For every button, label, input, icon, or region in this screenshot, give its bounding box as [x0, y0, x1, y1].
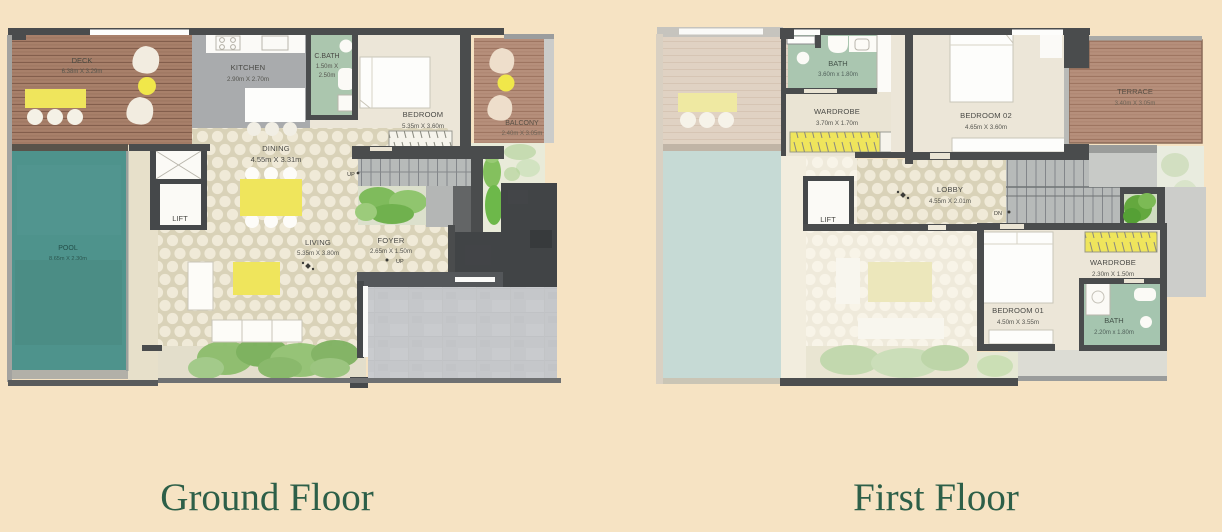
svg-text:UP: UP [347, 172, 355, 178]
svg-text:Ground Floor: Ground Floor [160, 476, 373, 519]
svg-text:4.50m X 3.55m: 4.50m X 3.55m [997, 319, 1039, 326]
svg-text:5.35m X 3.80m: 5.35m X 3.80m [297, 250, 339, 257]
svg-text:BEDROOM 02: BEDROOM 02 [960, 111, 1012, 120]
svg-text:DECK: DECK [72, 56, 93, 65]
svg-text:8.65m X 2.30m: 8.65m X 2.30m [49, 256, 87, 262]
svg-text:KITCHEN: KITCHEN [231, 63, 266, 72]
svg-text:DINING: DINING [262, 144, 290, 153]
svg-text:2.50m: 2.50m [319, 73, 336, 79]
svg-text:TERRACE: TERRACE [1117, 87, 1153, 96]
svg-text:LOBBY: LOBBY [937, 185, 963, 194]
svg-text:DN: DN [994, 211, 1002, 217]
svg-text:WARDROBE: WARDROBE [814, 107, 860, 116]
svg-text:4.55m X 2.01m: 4.55m X 2.01m [929, 198, 971, 205]
svg-text:LIFT: LIFT [172, 214, 188, 223]
svg-text:BATH: BATH [828, 59, 847, 68]
svg-text:BEDROOM 01: BEDROOM 01 [992, 306, 1044, 315]
svg-text:BATH: BATH [1104, 316, 1123, 325]
svg-text:3.60m x 1.80m: 3.60m x 1.80m [818, 72, 858, 78]
svg-text:BEDROOM: BEDROOM [403, 110, 444, 119]
svg-text:BALCONY: BALCONY [505, 120, 539, 127]
svg-text:3.40m X 3.05m: 3.40m X 3.05m [1115, 101, 1156, 107]
svg-text:5.35m X 3.60m: 5.35m X 3.60m [402, 123, 444, 130]
svg-text:4.55m X 3.31m: 4.55m X 3.31m [251, 155, 302, 164]
svg-text:1.50m X: 1.50m X [316, 64, 338, 70]
svg-text:2.65m X 1.50m: 2.65m X 1.50m [370, 248, 412, 255]
svg-text:3.70m X 1.70m: 3.70m X 1.70m [816, 120, 858, 127]
svg-text:WARDROBE: WARDROBE [1090, 258, 1136, 267]
svg-text:LIFT: LIFT [820, 215, 836, 224]
svg-text:FOYER: FOYER [377, 236, 404, 245]
svg-text:UP: UP [396, 259, 404, 265]
svg-text:6.38m X 3.29m: 6.38m X 3.29m [62, 69, 103, 75]
svg-text:2.20m x 1.80m: 2.20m x 1.80m [1094, 330, 1134, 336]
svg-text:LIVING: LIVING [305, 238, 331, 247]
svg-text:POOL: POOL [58, 245, 78, 252]
svg-text:First Floor: First Floor [853, 476, 1019, 519]
svg-text:2.30m X 1.50m: 2.30m X 1.50m [1092, 271, 1134, 278]
svg-text:C.BATH: C.BATH [314, 53, 339, 60]
svg-text:2.90m X 2.70m: 2.90m X 2.70m [227, 76, 269, 83]
svg-text:2.40m X 3.05m: 2.40m X 3.05m [502, 131, 543, 137]
svg-text:4.65m X 3.60m: 4.65m X 3.60m [965, 124, 1007, 131]
